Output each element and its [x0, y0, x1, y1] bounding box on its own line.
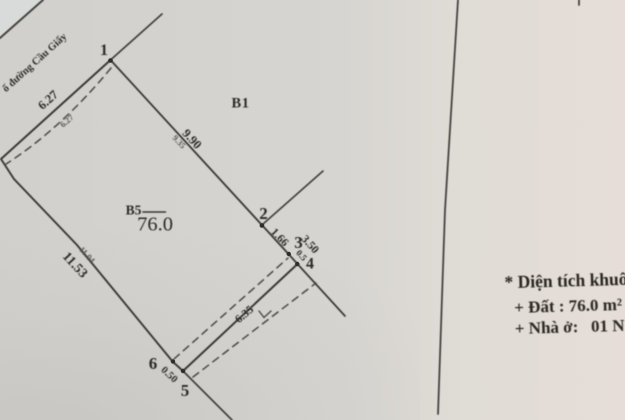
svg-text:5: 5: [181, 381, 190, 400]
svg-text:1: 1: [100, 42, 108, 59]
svg-text:4: 4: [306, 256, 314, 273]
svg-text:* Diện tích khuôn: * Diện tích khuôn: [504, 269, 625, 293]
svg-text:+ Đất : 76.0 m²: + Đất : 76.0 m²: [514, 295, 622, 317]
svg-text:2: 2: [259, 204, 268, 223]
svg-text:+ Nhà ở: 01 N: + Nhà ở: 01 N: [515, 316, 625, 338]
svg-text:B1: B1: [232, 96, 250, 112]
svg-text:6: 6: [149, 354, 158, 373]
svg-text:76.0: 76.0: [137, 214, 173, 236]
